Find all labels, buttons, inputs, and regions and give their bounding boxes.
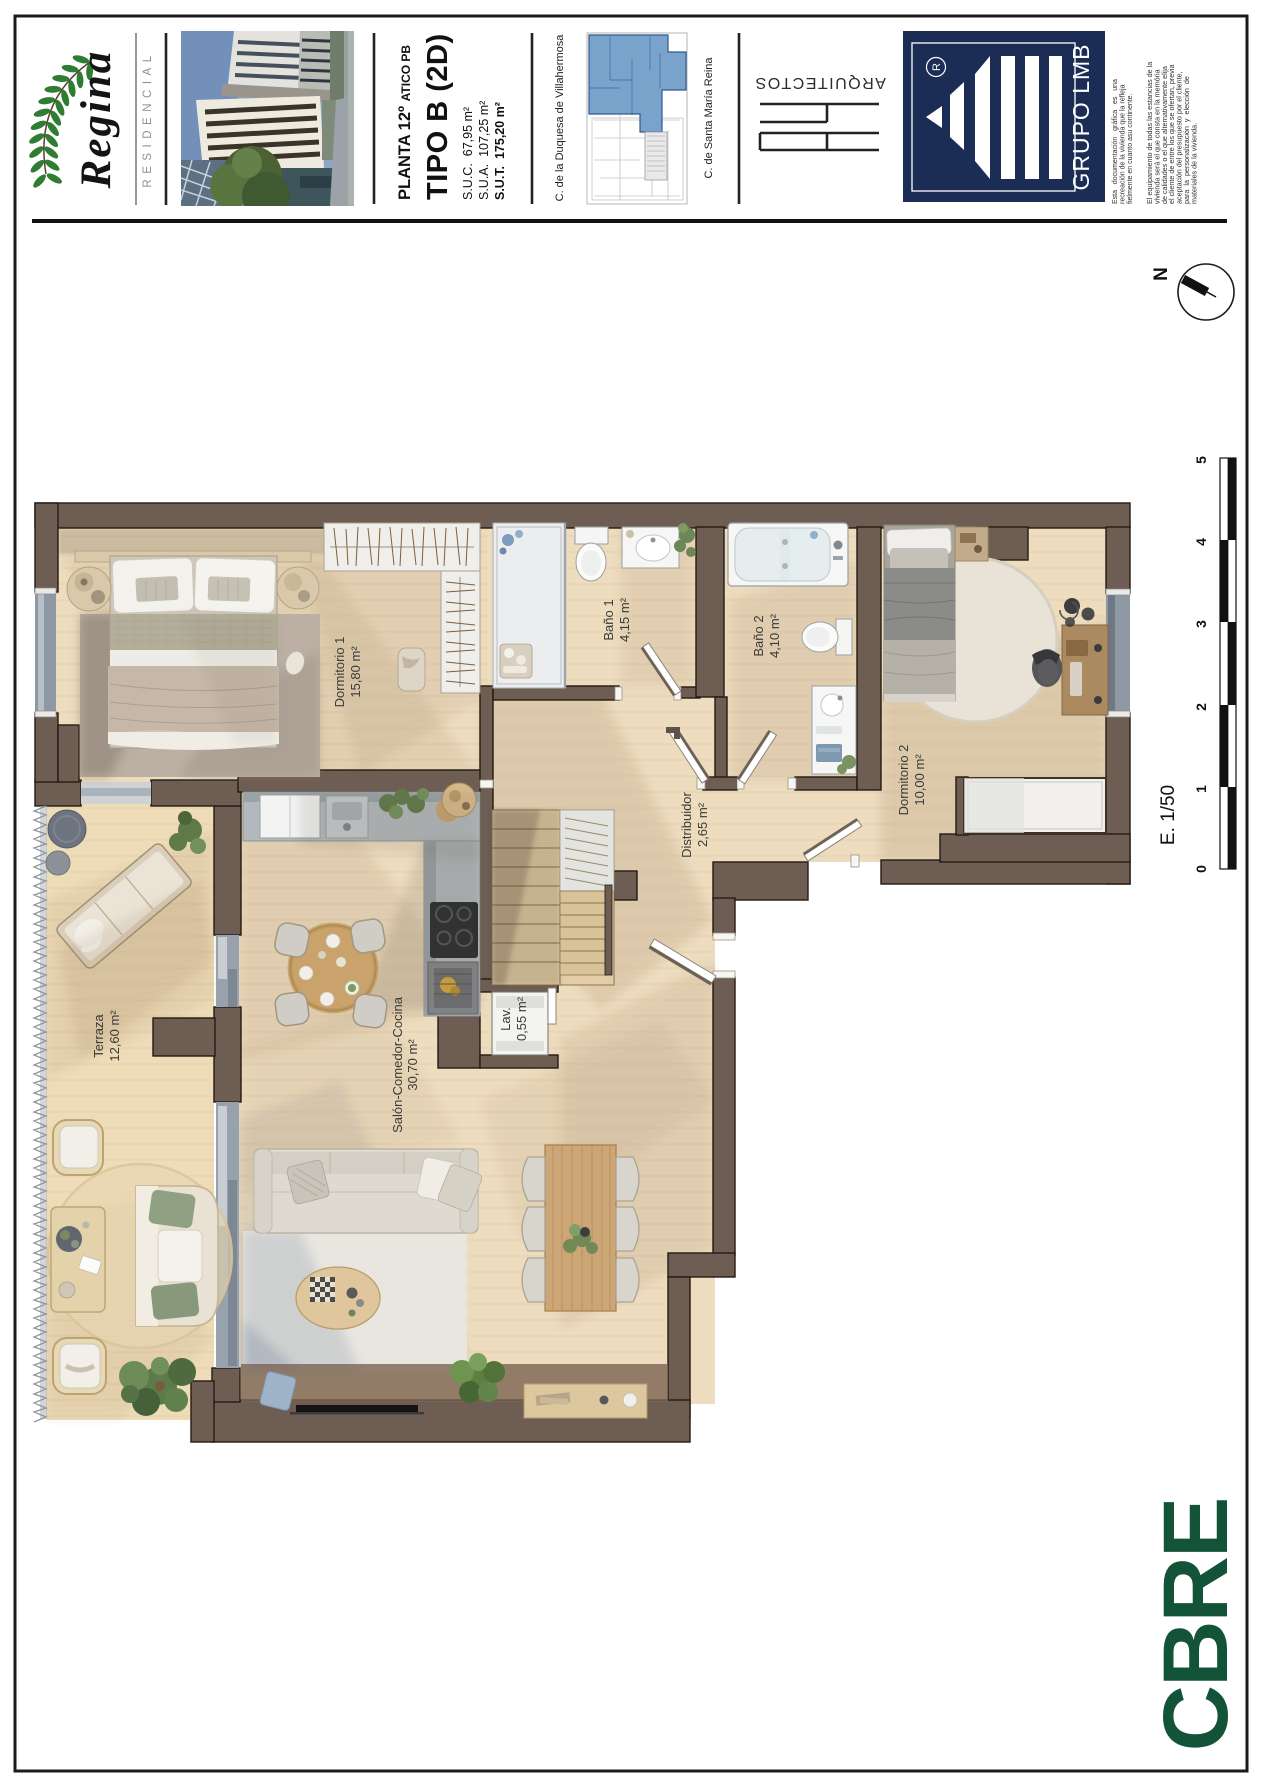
- svg-text:GRUPO LMB: GRUPO LMB: [1068, 43, 1094, 190]
- svg-text:Baño 24,10 m²: Baño 24,10 m²: [751, 613, 782, 658]
- svg-text:Terraza12,60 m²: Terraza12,60 m²: [91, 1010, 122, 1062]
- svg-text:Baño 14,15 m²: Baño 14,15 m²: [601, 597, 632, 642]
- svg-text:3: 3: [1193, 620, 1209, 628]
- svg-text:CBRE: CBRE: [1145, 1499, 1247, 1752]
- svg-text:0: 0: [1193, 865, 1209, 873]
- svg-text:1: 1: [1193, 785, 1209, 793]
- svg-text:E. 1/50: E. 1/50: [1158, 785, 1179, 845]
- svg-text:ARQUITECTOS: ARQUITECTOS: [754, 74, 886, 91]
- svg-text:S.U.C. 67,95 m²: S.U.C. 67,95 m²: [461, 107, 475, 200]
- svg-text:C. de Santa María Reina: C. de Santa María Reina: [703, 57, 715, 179]
- svg-text:TIPO B (2D): TIPO B (2D): [422, 33, 454, 200]
- svg-text:C. de la Duquesa de Villahermo: C. de la Duquesa de Villahermosa: [554, 34, 566, 202]
- svg-text:N: N: [1151, 267, 1172, 281]
- svg-text:4: 4: [1193, 538, 1209, 546]
- svg-text:S.U.A. 107,25 m²: S.U.A. 107,25 m²: [477, 101, 491, 200]
- svg-text:5: 5: [1193, 456, 1209, 464]
- svg-text:RESIDENCIAL: RESIDENCIAL: [142, 50, 154, 187]
- svg-text:Dormitorio 210,00 m²: Dormitorio 210,00 m²: [896, 745, 927, 816]
- svg-text:PLANTA 12º ATICO PB: PLANTA 12º ATICO PB: [396, 45, 414, 200]
- svg-text:Esta documentación gráfica: Esta documentación gráfica es unarecreac…: [1112, 79, 1134, 204]
- svg-text:R: R: [931, 63, 943, 71]
- svg-text:El equipamiento de todas las e: El equipamiento de todas las estancias d…: [1145, 62, 1198, 204]
- svg-text:Regina: Regina: [73, 50, 120, 190]
- svg-text:Dormitorio 115,80 m²: Dormitorio 115,80 m²: [332, 637, 363, 708]
- svg-text:2: 2: [1193, 703, 1209, 711]
- svg-text:S.U.T. 175,20 m²: S.U.T. 175,20 m²: [493, 102, 507, 200]
